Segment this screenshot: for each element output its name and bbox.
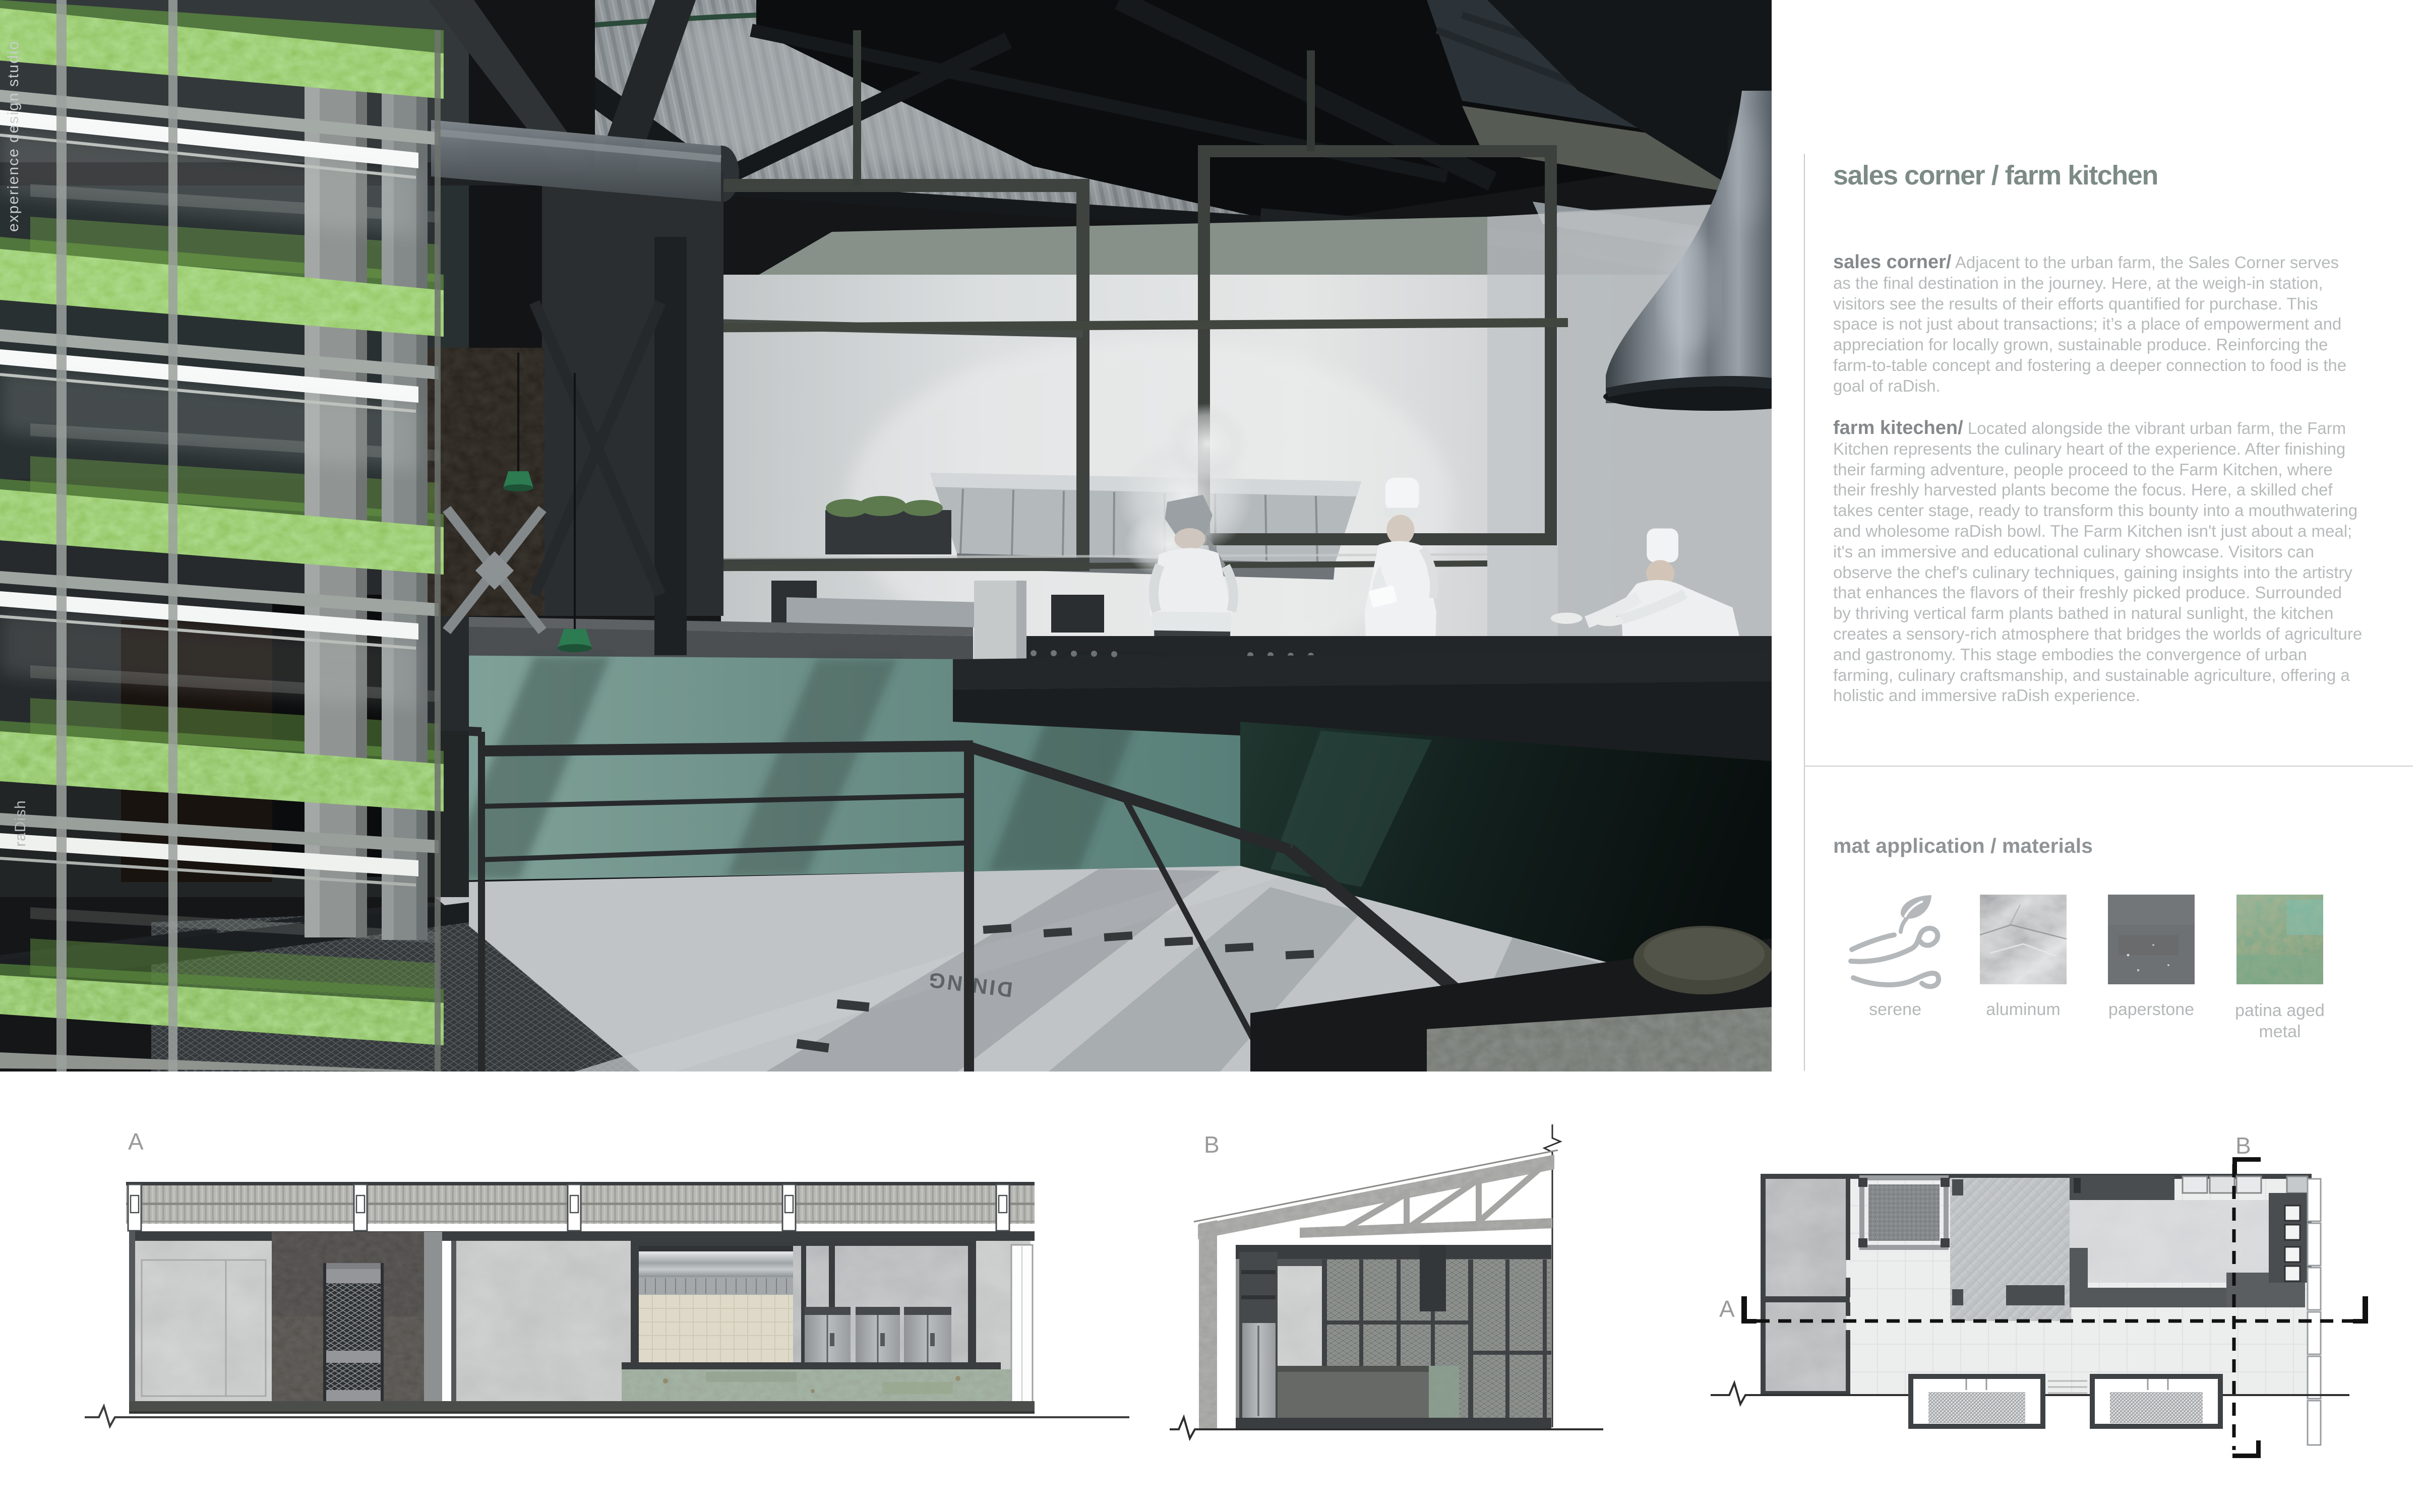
svg-text:raDish: raDish bbox=[12, 800, 29, 847]
svg-text:experience design studio: experience design studio bbox=[5, 40, 22, 232]
